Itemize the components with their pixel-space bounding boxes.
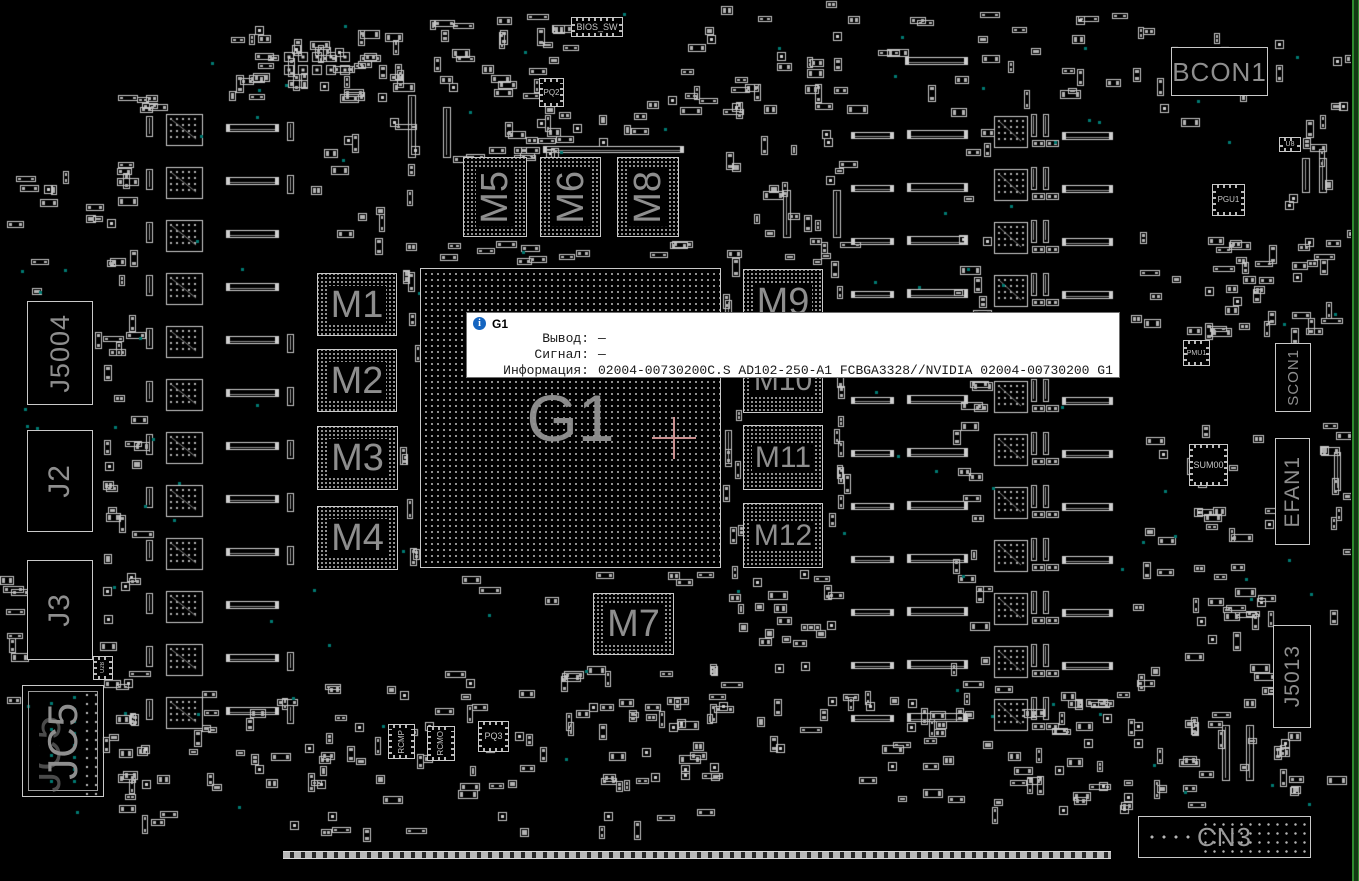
connector-jc5[interactable]: JC5: [22, 685, 104, 797]
component-label: M4: [328, 519, 387, 557]
cn3-pad-row: [1146, 835, 1194, 839]
component-label: U8: [1286, 141, 1295, 148]
connector-j2[interactable]: J2: [27, 430, 93, 532]
component-label: SUM00: [1193, 461, 1223, 470]
boardview-canvas: G1 M1 M2 M3 M4 M7 M9 M10 M11 M12 M5 M6 M…: [0, 0, 1359, 881]
component-pgu1[interactable]: PGU1: [1212, 184, 1245, 216]
component-m12[interactable]: M12: [743, 503, 823, 568]
component-label: SCON1: [1286, 349, 1301, 406]
component-label: M11: [752, 443, 814, 473]
tooltip-row-value: —: [598, 331, 606, 347]
component-label: RCMP: [398, 730, 406, 754]
component-label: EFAN1: [1282, 456, 1303, 528]
tooltip-row-value: —: [598, 347, 606, 363]
component-m8[interactable]: M8: [617, 157, 679, 237]
component-m11[interactable]: M11: [743, 425, 823, 490]
tooltip-title: G1: [492, 317, 508, 331]
connector-j5004[interactable]: J5004: [27, 301, 93, 405]
component-label: PQ2: [543, 89, 559, 97]
tooltip-row-label: Сигнал:: [467, 347, 589, 363]
component-m3[interactable]: M3: [317, 426, 398, 490]
component-label: U28: [100, 662, 106, 673]
connector-j3[interactable]: J3: [27, 560, 93, 660]
component-m6[interactable]: M6: [540, 157, 601, 237]
component-m1[interactable]: M1: [317, 273, 397, 336]
component-pq3[interactable]: PQ3: [478, 721, 509, 752]
component-label: PMU1: [1187, 350, 1206, 357]
component-label: PGU1: [1218, 196, 1240, 204]
component-label: M7: [604, 605, 663, 643]
component-sum00[interactable]: SUM00: [1189, 444, 1228, 486]
component-rcmo[interactable]: RCMO: [427, 726, 455, 761]
connector-cn3[interactable]: CN3: [1138, 816, 1311, 858]
bottom-edge-connector[interactable]: [283, 851, 1111, 859]
tooltip-row-value: 02004-00730200C.S AD102-250-A1 FCBGA3328…: [598, 363, 1113, 379]
component-label: J5004: [47, 314, 74, 393]
component-label: M2: [328, 362, 387, 400]
connector-j5013[interactable]: J5013: [1273, 625, 1311, 728]
component-tooltip: i G1 Вывод: — Сигнал: — Информация: 0200…: [466, 312, 1120, 378]
component-m2[interactable]: M2: [317, 349, 397, 412]
tooltip-row: Вывод: —: [467, 331, 1119, 347]
tooltip-row-label: Информация:: [467, 363, 589, 379]
connector-efan1[interactable]: EFAN1: [1275, 438, 1310, 545]
component-label: JC5: [42, 702, 84, 780]
component-m4[interactable]: M4: [317, 506, 398, 570]
component-label: RCMO: [437, 731, 445, 755]
component-label: PQ3: [484, 732, 502, 741]
tooltip-row: Сигнал: —: [467, 347, 1119, 363]
component-label: M12: [751, 521, 815, 551]
component-bios-switch[interactable]: BIOS_SW: [571, 17, 623, 37]
component-label: J3: [45, 593, 75, 627]
component-pmu1[interactable]: PMU1: [1183, 340, 1210, 366]
component-label: M3: [328, 439, 387, 477]
component-pq2[interactable]: PQ2: [539, 78, 564, 107]
board-edge: [1351, 0, 1359, 881]
connector-scon1[interactable]: SCON1: [1275, 343, 1311, 412]
component-label: J2: [45, 464, 75, 498]
connector-bcon1[interactable]: BCON1: [1171, 47, 1268, 96]
component-label: BCON1: [1172, 59, 1267, 85]
tooltip-row-label: Вывод:: [467, 331, 589, 347]
component-label: M8: [629, 168, 667, 227]
component-label: J5013: [1282, 645, 1303, 707]
component-label: M1: [328, 286, 387, 324]
component-label: M5: [476, 168, 514, 227]
crosshair-marker-vertical: [673, 417, 675, 459]
component-m5[interactable]: M5: [463, 157, 527, 237]
component-label: BIOS_SW: [576, 23, 617, 32]
tooltip-row: Информация: 02004-00730200C.S AD102-250-…: [467, 363, 1119, 379]
component-m7[interactable]: M7: [593, 593, 674, 655]
component-label: M6: [552, 168, 590, 227]
component-label: G1: [523, 385, 617, 451]
component-u28[interactable]: U28: [93, 656, 113, 680]
component-u8[interactable]: U8: [1279, 137, 1301, 152]
component-rcmp[interactable]: RCMP: [388, 724, 415, 759]
info-icon: i: [473, 317, 486, 330]
component-label: CN3: [1197, 824, 1252, 850]
